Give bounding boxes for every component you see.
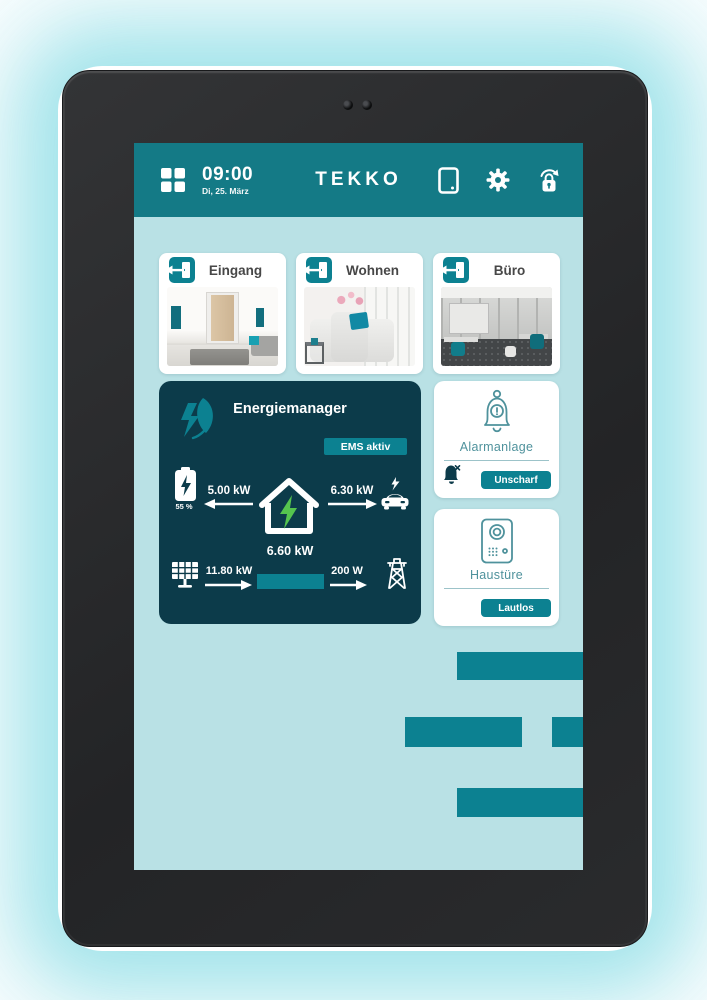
divider	[444, 588, 549, 589]
intercom-icon	[479, 518, 515, 564]
divider	[444, 460, 549, 461]
power-tower-icon	[384, 557, 410, 590]
flow-arrow-right-icon	[327, 498, 377, 510]
flow-arrow-right-icon	[329, 579, 367, 591]
room-label: Wohnen	[332, 263, 413, 278]
alarm-system-tile[interactable]: Alarmanlage Unscharf	[434, 381, 559, 498]
door-exit-icon	[302, 257, 332, 283]
flow-arrow-left-icon	[204, 498, 254, 510]
flow-arrow-right-icon	[204, 579, 252, 591]
door-exit-icon	[439, 257, 469, 283]
camera-dot	[343, 100, 353, 110]
ems-status-badge: EMS aktiv	[324, 438, 407, 455]
deco-bar	[405, 717, 522, 747]
ev-car-icon	[380, 477, 410, 511]
pv-flow-value: 11.80 kW	[201, 565, 257, 577]
room-label: Eingang	[195, 263, 276, 278]
door-exit-icon	[165, 257, 195, 283]
tablet-icon[interactable]	[438, 167, 459, 194]
room-photo-eingang	[167, 287, 278, 366]
alarm-bell-icon	[478, 389, 516, 435]
energy-progress-bar	[257, 574, 324, 589]
energy-title: Energiemanager	[159, 401, 421, 417]
front-door-title: Haustüre	[434, 568, 559, 582]
tablet-photo: 09:00 Di, 25. März TEKKO	[0, 0, 707, 1000]
lock-refresh-icon[interactable]	[537, 167, 561, 194]
door-state-button[interactable]: Lautlos	[481, 599, 551, 617]
room-label: Büro	[469, 263, 550, 278]
room-photo-wohnen	[304, 287, 415, 366]
deco-bar	[552, 717, 583, 747]
ev-flow-value: 6.30 kW	[328, 485, 376, 497]
home-consumption-value: 6.60 kW	[159, 544, 421, 558]
room-card-eingang[interactable]: Eingang	[159, 253, 286, 374]
room-card-wohnen[interactable]: Wohnen	[296, 253, 423, 374]
front-door-tile[interactable]: Haustüre Lautlos	[434, 509, 559, 626]
smart-home-screen: 09:00 Di, 25. März TEKKO	[134, 143, 583, 870]
room-card-row: Eingang	[159, 253, 560, 374]
room-photo-buero	[441, 287, 552, 366]
camera-dot	[362, 100, 372, 110]
room-card-buero[interactable]: Büro	[433, 253, 560, 374]
grid-flow-value: 200 W	[319, 565, 375, 577]
alarm-title: Alarmanlage	[434, 440, 559, 454]
alarm-state-button[interactable]: Unscharf	[481, 471, 551, 489]
deco-bar	[457, 652, 583, 680]
bell-off-icon	[442, 465, 461, 486]
battery-icon	[173, 467, 198, 502]
deco-bar	[457, 788, 583, 817]
app-header: 09:00 Di, 25. März TEKKO	[134, 143, 583, 217]
battery-flow-value: 5.00 kW	[205, 485, 253, 497]
gear-icon[interactable]	[486, 168, 510, 192]
house-bolt-icon	[255, 473, 323, 537]
tablet-frame: 09:00 Di, 25. März TEKKO	[62, 70, 648, 947]
battery-soc: 55 %	[164, 502, 204, 511]
energy-manager-tile[interactable]: Energiemanager EMS aktiv 55 % 5.00 kW	[159, 381, 421, 624]
solar-panel-icon	[171, 561, 199, 589]
